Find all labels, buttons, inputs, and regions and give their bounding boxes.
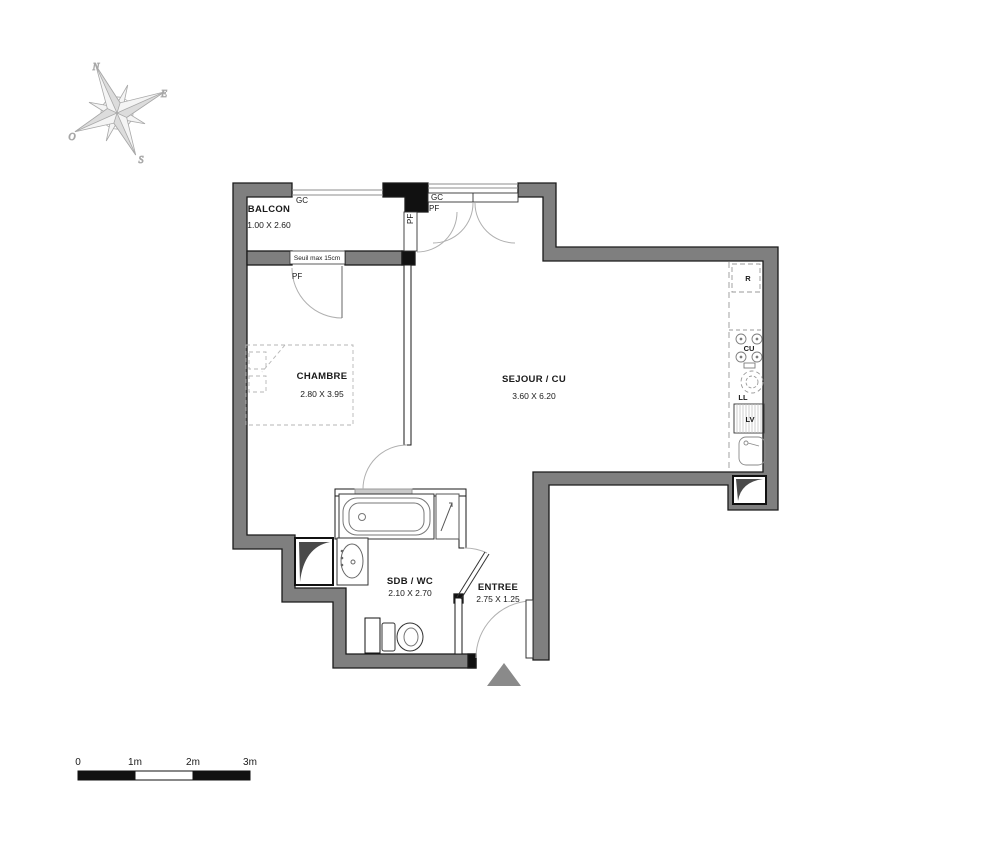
kitchen-sink: [739, 437, 765, 465]
washing-machine-drum-inner: [746, 376, 758, 388]
wall-right-complex: [518, 183, 778, 660]
washbasin-drain: [351, 560, 355, 564]
room-dims-entree: 2.75 X 1.25: [476, 594, 520, 604]
label-pf-sejour: PF: [429, 204, 439, 213]
partition-sdb-right: [459, 496, 466, 548]
scale-seg-2-3: [193, 771, 250, 780]
wall-balcony-bottom-right: [345, 251, 402, 265]
bathtub-drain: [359, 514, 366, 521]
kitchen-sink-tap: [744, 441, 748, 445]
entrance-triangle-marker: [487, 663, 521, 686]
room-dims-balcon: 1.00 X 2.60: [247, 220, 291, 230]
scale-seg-1-2: [135, 771, 193, 780]
jamb-balcony-door: [402, 251, 415, 265]
room-label-sdb: SDB / WC: [387, 576, 433, 587]
scale-tick-2m: 2m: [186, 757, 200, 768]
toilet-tank: [382, 623, 395, 651]
room-dims-sdb: 2.10 X 2.70: [388, 588, 432, 598]
entrance-door-leaf: [526, 600, 533, 658]
toilet-bowl-inner: [404, 628, 418, 646]
kitchen-sink-tap-arm: [748, 443, 759, 446]
floor-plan-page: N E S O: [0, 0, 1000, 857]
scale-tick-1m: 1m: [128, 757, 142, 768]
room-label-entree: ENTREE: [478, 582, 518, 593]
scale-tick-3m: 3m: [243, 757, 257, 768]
room-label-balcon: BALCON: [248, 204, 290, 215]
compass-east-label: E: [160, 89, 167, 100]
partition-chambre-sejour: [404, 265, 411, 445]
room-label-sejour: SEJOUR / CU: [502, 374, 566, 385]
kitchen-strip: [729, 262, 765, 468]
sdb-door-arc: [464, 548, 487, 553]
room-dims-chambre: 2.80 X 3.95: [300, 389, 344, 399]
scale-bar: 0 1m 2m 3m: [75, 757, 257, 780]
bathroom-fixtures: [337, 494, 459, 653]
compass-west-label: O: [68, 132, 75, 143]
partition-wc-left: [455, 598, 462, 654]
blanket-fold: [262, 345, 285, 372]
pillow-1: [249, 352, 266, 369]
scale-seg-0-1: [78, 771, 135, 780]
label-dishwasher: LV: [745, 415, 754, 424]
room-label-chambre: CHAMBRE: [297, 371, 348, 382]
label-gc-balcony: GC: [296, 196, 308, 205]
bed-outline: [246, 345, 353, 425]
label-pf-chambre: PF: [292, 272, 302, 281]
compass-rose: N E S O: [54, 44, 183, 173]
bedroom-furniture: [246, 345, 353, 425]
compass-north-label: N: [92, 62, 101, 73]
scale-tick-0: 0: [75, 757, 81, 768]
label-washing-machine: LL: [738, 393, 748, 402]
balcony-sejour-door-arc: [417, 212, 457, 252]
sejour-window-arc-right: [475, 203, 515, 243]
pillar-structure: [383, 183, 428, 212]
kitchen-labels: R CU LL LV: [738, 274, 754, 424]
wall-balcony-bottom-left: [247, 251, 292, 265]
compass-south-label: S: [139, 155, 144, 166]
label-fridge: R: [745, 274, 751, 283]
chambre-door-arc: [363, 445, 407, 489]
label-seuil: Seuil max 15cm: [294, 255, 340, 262]
label-pf-balcony-door: PF: [406, 214, 415, 224]
washing-machine-drum: [741, 371, 763, 393]
label-gc-sejour: GC: [431, 193, 443, 202]
label-hob: CU: [744, 344, 755, 353]
floor-plan-drawing: N E S O: [0, 0, 1000, 857]
pillow-2: [249, 376, 266, 392]
entrance-door-arc: [476, 601, 529, 658]
jamb-entrance-door: [468, 654, 476, 668]
radiator-panel: [436, 494, 459, 539]
wc-duct-box: [365, 618, 380, 653]
room-dims-sejour: 3.60 X 6.20: [512, 391, 556, 401]
